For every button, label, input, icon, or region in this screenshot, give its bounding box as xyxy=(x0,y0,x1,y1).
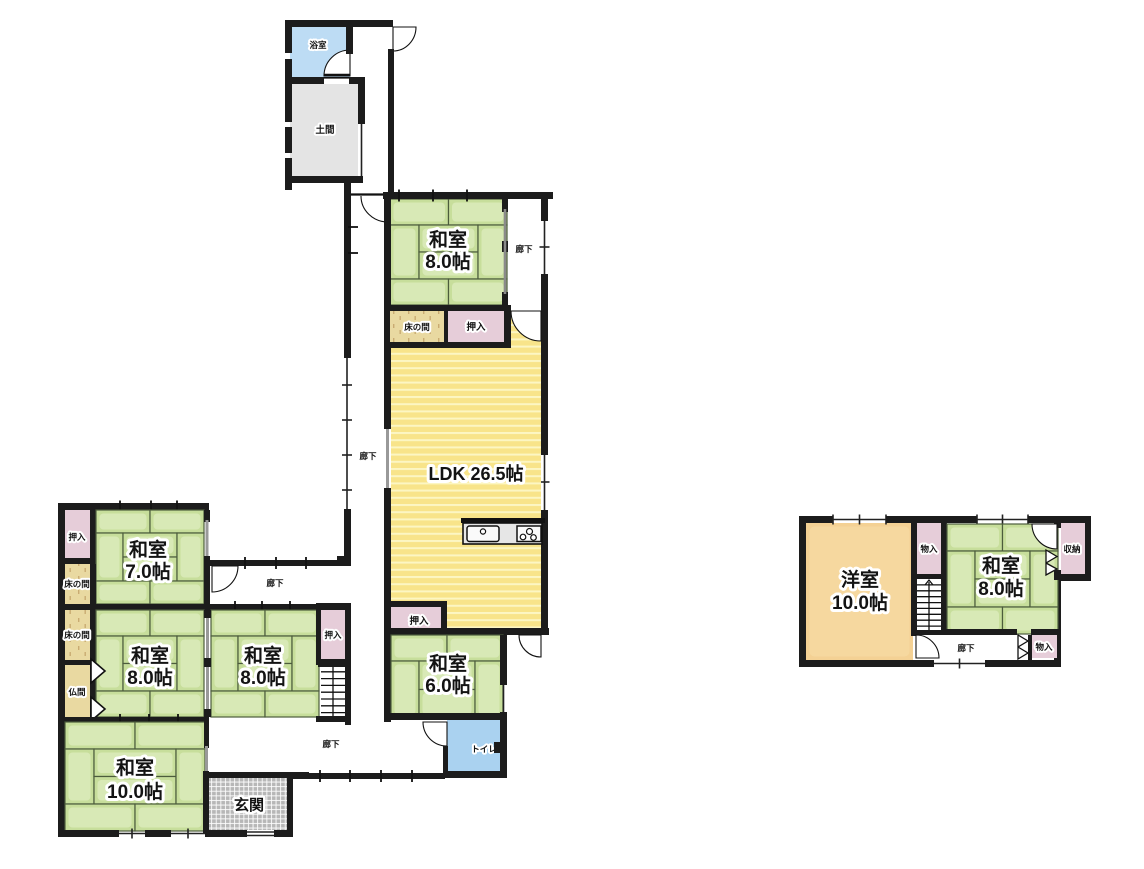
svg-text:床の間: 床の間 xyxy=(404,322,430,332)
svg-text:廊下: 廊下 xyxy=(322,739,340,749)
svg-text:廊下: 廊下 xyxy=(266,578,284,588)
svg-text:8.0帖: 8.0帖 xyxy=(127,666,172,689)
svg-text:廊下: 廊下 xyxy=(359,451,377,461)
svg-text:浴室: 浴室 xyxy=(309,40,327,50)
svg-text:和室: 和室 xyxy=(429,228,467,251)
svg-text:玄関: 玄関 xyxy=(234,796,264,814)
svg-text:10.0帖: 10.0帖 xyxy=(832,591,888,614)
svg-text:和室: 和室 xyxy=(131,644,169,667)
svg-text:和室: 和室 xyxy=(116,756,154,779)
svg-text:トイレ: トイレ xyxy=(471,744,497,754)
svg-text:和室: 和室 xyxy=(244,644,282,667)
svg-text:廊下: 廊下 xyxy=(515,244,533,254)
svg-text:押入: 押入 xyxy=(324,630,342,640)
svg-text:LDK 26.5帖: LDK 26.5帖 xyxy=(428,463,523,484)
svg-text:洋室: 洋室 xyxy=(841,568,879,591)
svg-text:和室: 和室 xyxy=(982,554,1020,577)
svg-text:床の間: 床の間 xyxy=(64,579,90,589)
svg-text:収納: 収納 xyxy=(1063,544,1080,554)
svg-text:押入: 押入 xyxy=(466,321,486,333)
svg-text:8.0帖: 8.0帖 xyxy=(978,577,1023,600)
svg-text:8.0帖: 8.0帖 xyxy=(240,666,285,689)
svg-text:和室: 和室 xyxy=(129,538,167,561)
svg-text:和室: 和室 xyxy=(429,652,467,675)
svg-text:物入: 物入 xyxy=(1035,642,1053,652)
svg-text:7.0帖: 7.0帖 xyxy=(125,560,170,583)
svg-text:土間: 土間 xyxy=(315,124,334,136)
svg-text:廊下: 廊下 xyxy=(957,643,975,653)
svg-text:押入: 押入 xyxy=(409,615,429,627)
svg-text:10.0帖: 10.0帖 xyxy=(107,780,163,803)
svg-text:押入: 押入 xyxy=(68,532,86,542)
svg-text:8.0帖: 8.0帖 xyxy=(425,250,470,273)
svg-text:物入: 物入 xyxy=(920,544,938,554)
svg-text:仏間: 仏間 xyxy=(67,687,85,697)
svg-text:床の間: 床の間 xyxy=(64,630,90,640)
svg-text:6.0帖: 6.0帖 xyxy=(425,674,470,697)
